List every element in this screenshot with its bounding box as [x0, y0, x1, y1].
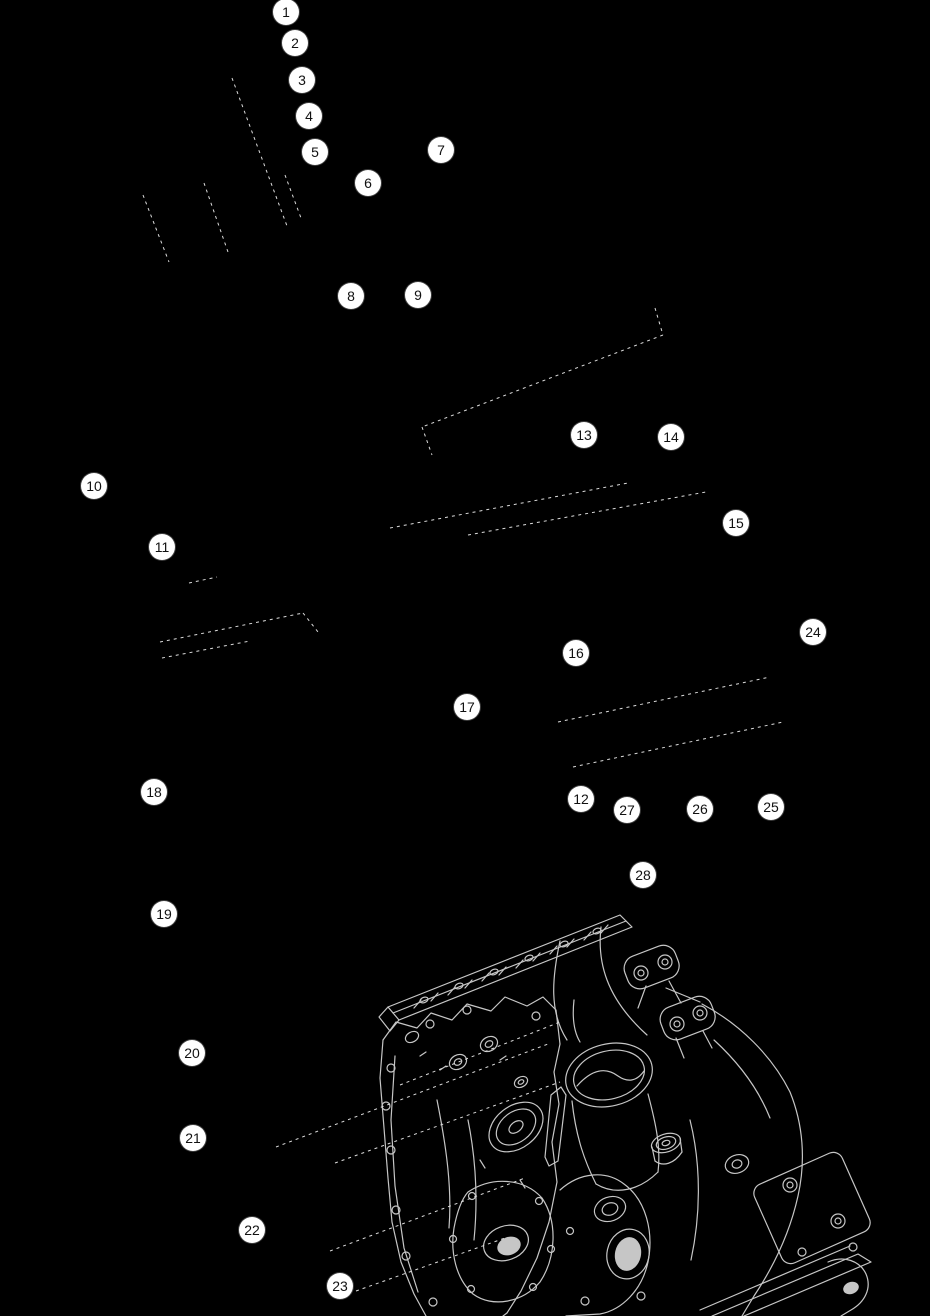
- callout-28[interactable]: 28: [630, 862, 656, 888]
- callout-26[interactable]: 26: [687, 796, 713, 822]
- callout-15[interactable]: 15: [723, 510, 749, 536]
- callout-19[interactable]: 19: [151, 901, 177, 927]
- callout-layer: 1234567891011121314151617181920212223242…: [0, 0, 930, 1316]
- callout-20[interactable]: 20: [179, 1040, 205, 1066]
- diagram-canvas: 1234567891011121314151617181920212223242…: [0, 0, 930, 1316]
- callout-5[interactable]: 5: [302, 139, 328, 165]
- callout-23[interactable]: 23: [327, 1273, 353, 1299]
- callout-1[interactable]: 1: [273, 0, 299, 25]
- callout-16[interactable]: 16: [563, 640, 589, 666]
- callout-6[interactable]: 6: [355, 170, 381, 196]
- callout-9[interactable]: 9: [405, 282, 431, 308]
- callout-24[interactable]: 24: [800, 619, 826, 645]
- callout-11[interactable]: 11: [149, 534, 175, 560]
- callout-18[interactable]: 18: [141, 779, 167, 805]
- callout-21[interactable]: 21: [180, 1125, 206, 1151]
- callout-2[interactable]: 2: [282, 30, 308, 56]
- callout-13[interactable]: 13: [571, 422, 597, 448]
- callout-25[interactable]: 25: [758, 794, 784, 820]
- callout-17[interactable]: 17: [454, 694, 480, 720]
- callout-14[interactable]: 14: [658, 424, 684, 450]
- callout-8[interactable]: 8: [338, 283, 364, 309]
- callout-3[interactable]: 3: [289, 67, 315, 93]
- callout-10[interactable]: 10: [81, 473, 107, 499]
- callout-22[interactable]: 22: [239, 1217, 265, 1243]
- callout-7[interactable]: 7: [428, 137, 454, 163]
- callout-12[interactable]: 12: [568, 786, 594, 812]
- callout-4[interactable]: 4: [296, 103, 322, 129]
- callout-27[interactable]: 27: [614, 797, 640, 823]
